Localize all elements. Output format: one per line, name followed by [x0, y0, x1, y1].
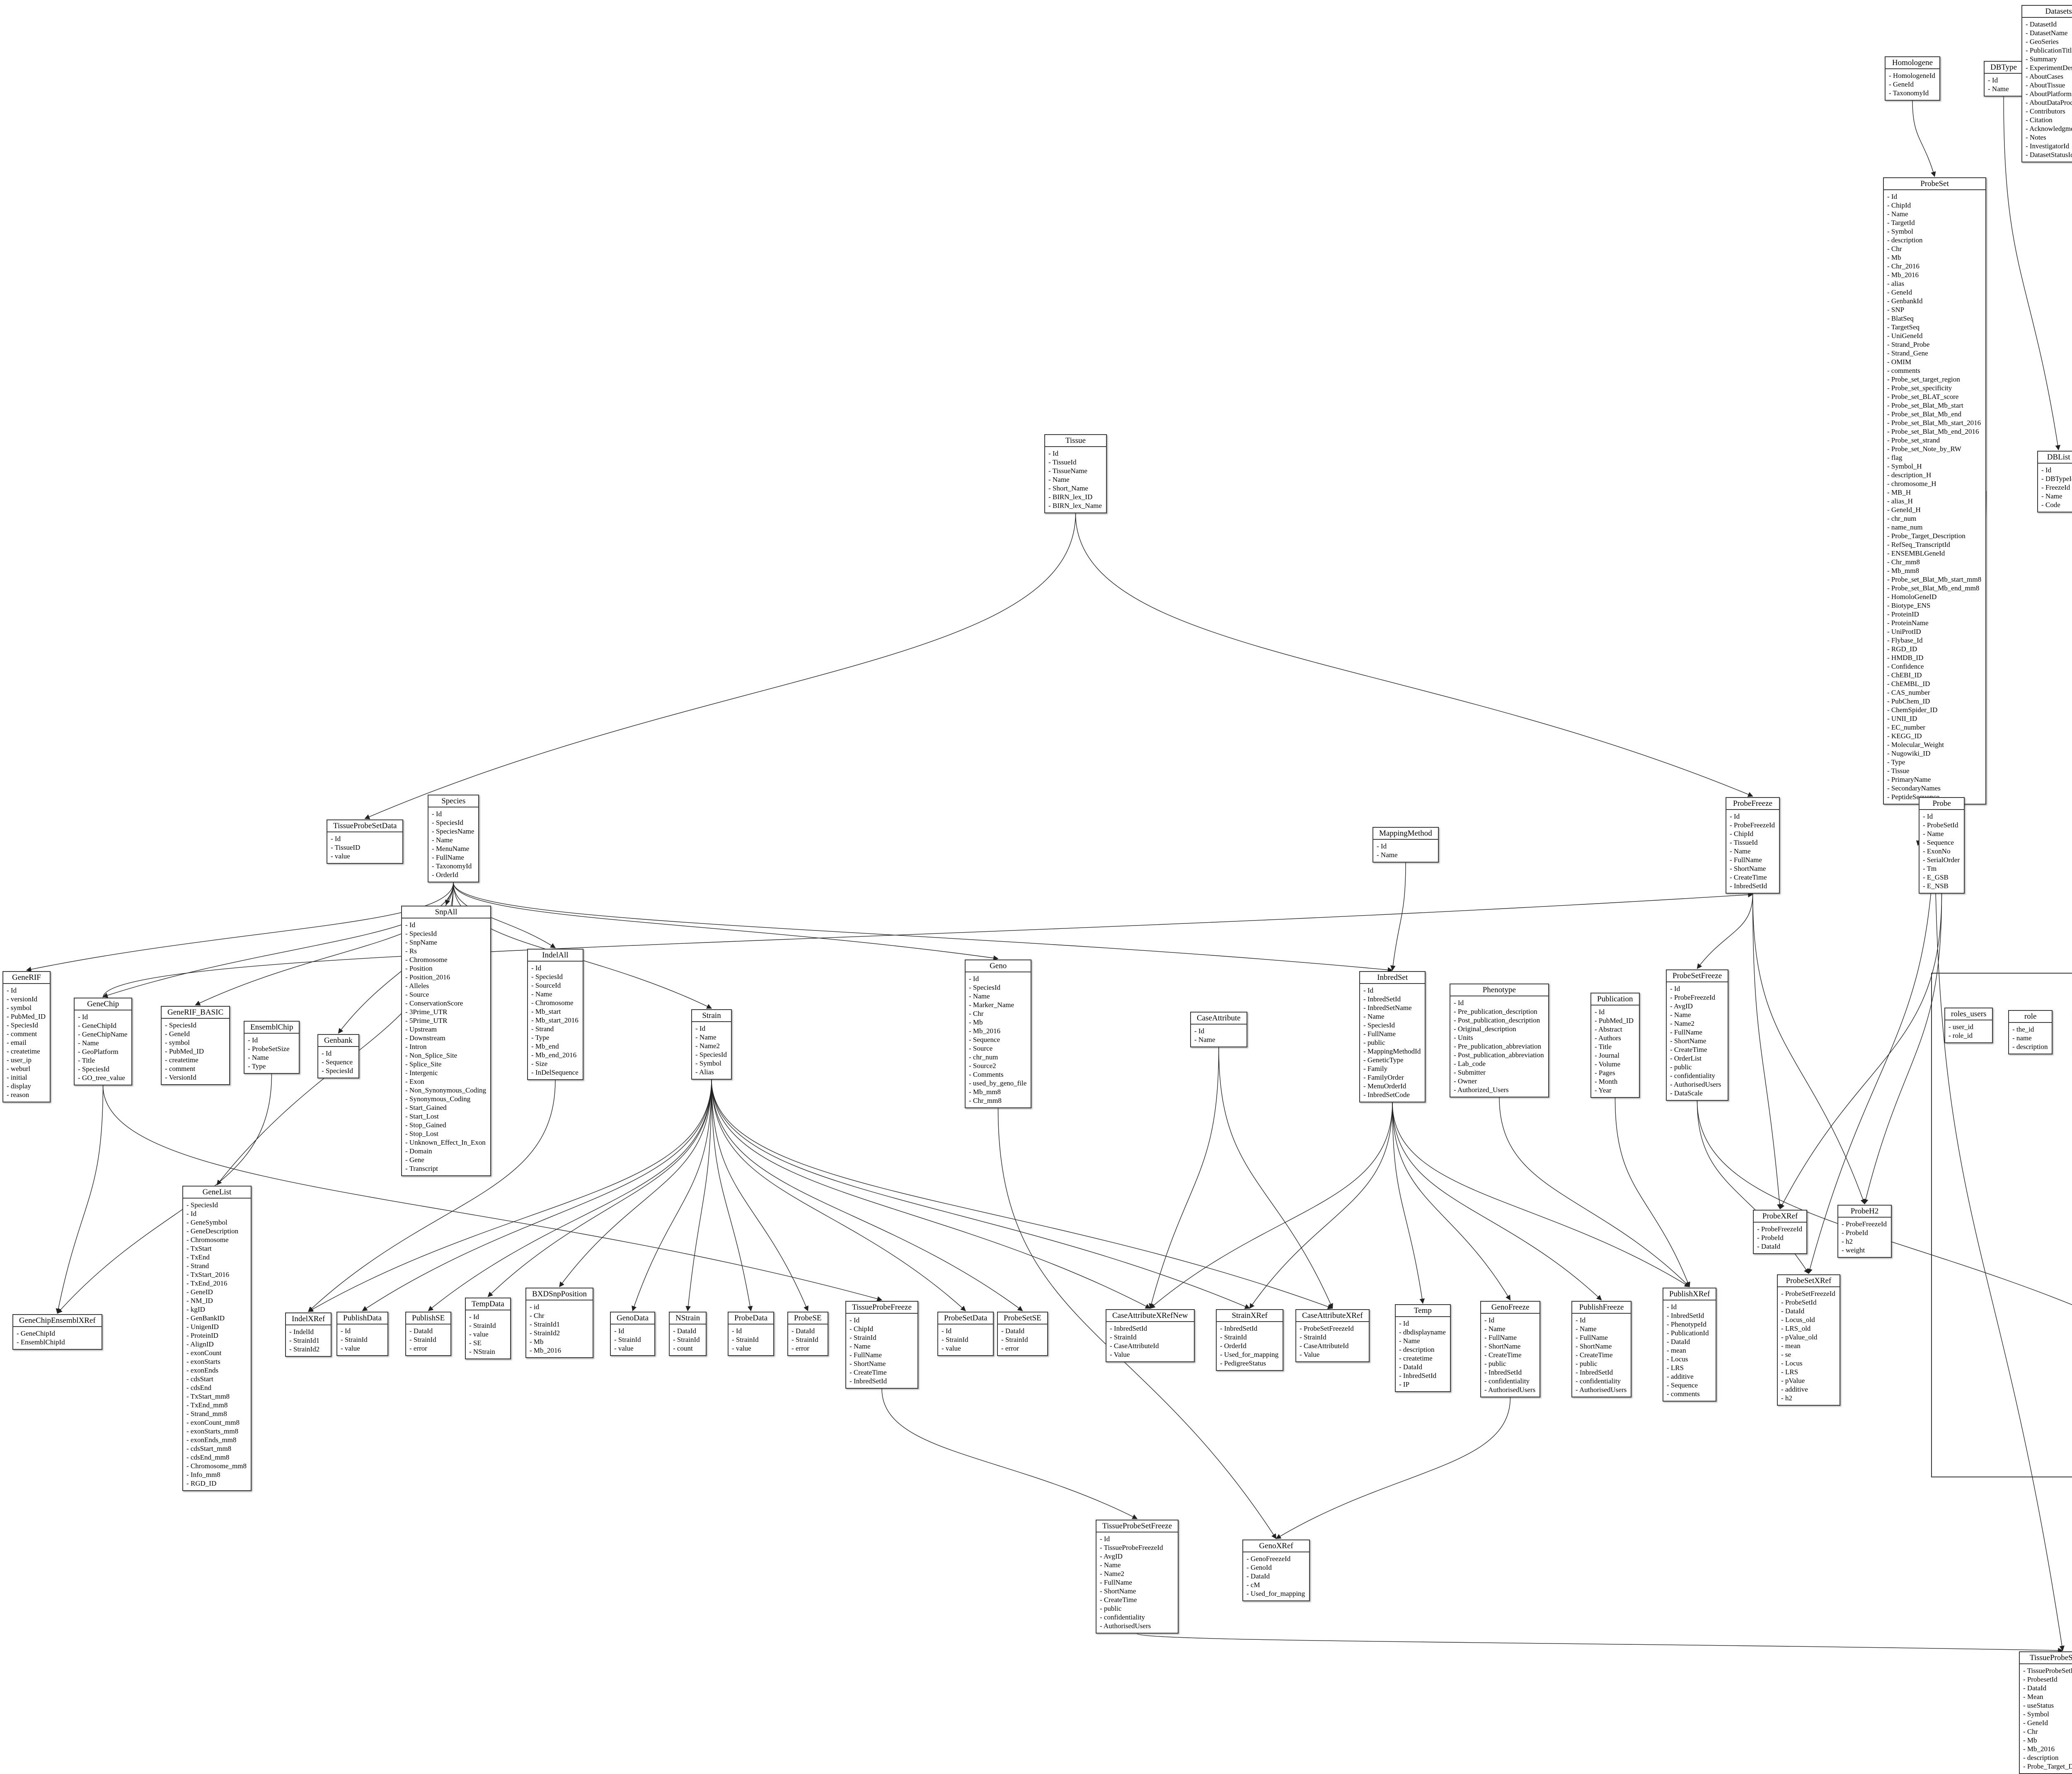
table-field: - Id: [1048, 449, 1102, 458]
table-title: CaseAttributeXRefNew: [1106, 1310, 1194, 1322]
table-field: - createtime: [165, 1056, 225, 1064]
table-field: - DataId: [673, 1327, 702, 1335]
edge-Phenotype-PublishXRef: [1499, 1097, 1690, 1287]
table-field: - cM: [1247, 1581, 1305, 1589]
table-field: - error: [409, 1344, 446, 1353]
table-field: - Name: [1048, 475, 1102, 484]
table-field: - comment: [7, 1030, 46, 1038]
table-field: - PublicationId: [1667, 1329, 1711, 1337]
table-field: - PubChem_ID: [1887, 697, 1981, 706]
table-field: - AvgID: [1670, 1002, 1723, 1010]
table-field: - InbredSetId: [1576, 1368, 1627, 1377]
table-field: - PubMed_ID: [165, 1047, 225, 1056]
table-field: - AuthorisedUsers: [1100, 1622, 1174, 1630]
table-field: - SpeciesId: [322, 1066, 354, 1075]
table-title: StrainXRef: [1217, 1310, 1283, 1322]
table-field: - Authorized_Users: [1454, 1085, 1544, 1094]
table-field: - versionId: [7, 995, 46, 1003]
table-field: - FullName: [1100, 1578, 1174, 1587]
table-field: - Type: [248, 1062, 295, 1071]
table-field: - Upstream: [405, 1025, 486, 1034]
table-field: - Locus: [1781, 1359, 1835, 1368]
table-field: - Symbol: [2023, 1710, 2072, 1718]
table-field: - SpeciesId: [695, 1050, 727, 1059]
table-field: - SpeciesId: [1363, 1021, 1421, 1030]
table-MappingMethod: MappingMethod- Id- Name: [1372, 827, 1439, 863]
table-field: - GenoFreezeId: [1247, 1554, 1305, 1563]
table-field: - cdsEnd: [186, 1383, 247, 1392]
table-field-list: - Id- versionId- symbol- PubMed_ID- Spec…: [3, 984, 50, 1102]
table-PublishFreeze: PublishFreeze- Id- Name- FullName- Short…: [1571, 1301, 1631, 1397]
table-field-list: - Id- Pre_publication_description- Post_…: [1450, 996, 1548, 1097]
table-field: - description: [2023, 1753, 2072, 1762]
table-field: - Name: [1576, 1324, 1627, 1333]
table-field: - TxEnd_2016: [186, 1279, 247, 1288]
edge-Strain-ProbeSE: [712, 1080, 808, 1311]
table-field: - Name: [695, 1033, 727, 1042]
table-field: - InbredSetId: [1363, 995, 1421, 1003]
table-title: roles_users: [1945, 1008, 1992, 1020]
table-field: - used_by_geno_file: [969, 1079, 1026, 1088]
table-field: - Title: [78, 1056, 127, 1065]
table-field: - Sequence: [1923, 838, 1960, 847]
table-field: - error: [792, 1344, 823, 1353]
table-field: - DataId: [2023, 1684, 2072, 1692]
table-field: - exonCount: [186, 1349, 247, 1357]
table-field: - StrainId: [942, 1335, 989, 1344]
table-field: - HomologeneId: [1889, 71, 1935, 80]
table-field: - Name: [1887, 210, 1981, 218]
edge-ProbeSet-ProbeSetXRef: [1809, 805, 1935, 1274]
table-field: - ProbeFreezeId: [1757, 1225, 1802, 1233]
table-title: PublishFreeze: [1572, 1302, 1631, 1314]
edge-TissueProbeSetFreeze-TissueProbeSetXRef: [1137, 1634, 2063, 1651]
table-field: - role_id: [1949, 1031, 1988, 1040]
table-field: - GenoId: [1247, 1563, 1305, 1572]
table-field: - Mb_2016: [1887, 271, 1981, 279]
table-field: - Id: [248, 1036, 295, 1044]
table-field: - KEGG_ID: [1887, 732, 1981, 740]
table-field: - PublicationTitle: [2026, 46, 2072, 55]
table-InbredSet: InbredSet- Id- InbredSetId- InbredSetNam…: [1359, 971, 1426, 1102]
table-field: - Source: [969, 1044, 1026, 1053]
table-field: - InbredSetCode: [1363, 1090, 1421, 1099]
table-field: - ProbeFreezeId: [1670, 993, 1723, 1002]
table-field: - Chr: [2023, 1727, 2072, 1736]
table-field: - StrainId: [732, 1335, 769, 1344]
table-title: ProbeData: [729, 1312, 773, 1324]
edge-Species-InbredSet: [453, 882, 1392, 970]
table-field: - Non_Splice_Site: [405, 1051, 486, 1060]
table-field: - Probe_set_Blat_Mb_end: [1887, 410, 1981, 418]
table-field: - GeneId: [1887, 288, 1981, 297]
table-field-list: - ProbeSetFreezeId- StrainId- CaseAttrib…: [1296, 1322, 1369, 1361]
table-field: - StrainId: [469, 1321, 506, 1330]
table-field: - Source: [405, 990, 486, 999]
table-field: - se: [1781, 1350, 1835, 1359]
table-field: - useStatus: [2023, 1701, 2072, 1710]
table-field: - value: [942, 1344, 989, 1353]
table-field: - Nugowiki_ID: [1887, 749, 1981, 758]
table-Genbank: Genbank- Id- Sequence- SpeciesId: [317, 1034, 359, 1078]
table-GeneList: GeneList- SpeciesId- Id- GeneSymbol- Gen…: [182, 1186, 252, 1491]
table-field: - Year: [1595, 1086, 1635, 1095]
table-field: - Name: [1363, 1012, 1421, 1021]
table-title: ProbeSetData: [938, 1312, 993, 1324]
table-field: - ChipId: [850, 1324, 913, 1333]
table-field: - initial: [7, 1073, 46, 1082]
table-field: - InbredSetId: [1667, 1311, 1711, 1320]
edge-Strain-CaseAttributeXRef: [712, 1080, 1333, 1308]
table-field-list: - HomologeneId- GeneId- TaxonomyId: [1886, 69, 1939, 100]
table-Probe: Probe- Id- ProbeSetId- Name- Sequence- E…: [1919, 797, 1965, 894]
table-field: - InbredSetId: [1110, 1324, 1190, 1333]
table-roles_users: roles_users- user_id- role_id: [1944, 1008, 1993, 1043]
table-title: SnpAll: [402, 906, 490, 918]
table-title: ProbeXRef: [1754, 1211, 1806, 1223]
table-field: - Tm: [1923, 864, 1960, 873]
table-PublishXRef: PublishXRef- Id- InbredSetId- PhenotypeI…: [1663, 1288, 1716, 1402]
table-field: - Value: [1110, 1350, 1190, 1359]
table-title: GeneRIF_BASIC: [162, 1007, 229, 1019]
table-field: - TaxonomyId: [432, 862, 474, 870]
table-title: PublishSE: [406, 1312, 450, 1324]
table-field: - Id: [78, 1013, 127, 1021]
edge-Strain-CaseAttributeXRefNew: [712, 1080, 1150, 1308]
table-Datasets: Datasets- DatasetId- DatasetName- GeoSer…: [2021, 5, 2072, 162]
table-field: - Id: [432, 810, 474, 818]
table-field-list: - Id- StrainId- value: [611, 1324, 654, 1355]
table-field: - SourceId: [531, 981, 579, 990]
table-field: - Biotype_ENS: [1887, 601, 1981, 610]
table-field: - h2: [1781, 1394, 1835, 1402]
table-field: - Mb_mm8: [969, 1088, 1026, 1096]
table-ProbeSetFreeze: ProbeSetFreeze- Id- ProbeFreezeId- AvgID…: [1666, 969, 1728, 1101]
table-field: - Chromosome: [405, 955, 486, 964]
table-title: ProbeSetXRef: [1778, 1275, 1840, 1287]
table-field: - Post_publication_abbreviation: [1454, 1051, 1544, 1059]
table-field: - GeneID: [186, 1288, 247, 1296]
table-field: - StrainId: [1300, 1333, 1365, 1341]
table-field: - StrainId: [409, 1335, 446, 1344]
table-field: - Mb_end: [531, 1042, 579, 1051]
table-field: - Id: [1595, 1008, 1635, 1016]
table-field: - Id: [695, 1024, 727, 1033]
table-field: - Code: [2041, 500, 2072, 509]
table-field-list: - Id- StrainId- value: [729, 1324, 773, 1355]
table-field: - Name: [1100, 1561, 1174, 1569]
table-field: - user_ip: [7, 1056, 46, 1064]
table-field: - FamilyOrder: [1363, 1073, 1421, 1082]
table-field-list: - Id- Sequence- SpeciesId: [318, 1047, 358, 1078]
table-field: - DataId: [1757, 1242, 1802, 1251]
table-GeneChip: GeneChip- Id- GeneChipId- GeneChipName- …: [74, 998, 132, 1085]
table-field: - FullName: [1576, 1333, 1627, 1342]
table-Homologene: Homologene- HomologeneId- GeneId- Taxono…: [1885, 56, 1940, 101]
table-field-list: - Id- Name: [1191, 1025, 1247, 1047]
table-field: - GeneticType: [1363, 1056, 1421, 1064]
table-field: - Probe_Target_Description: [1887, 532, 1981, 540]
table-field: - TxStart_mm8: [186, 1392, 247, 1401]
table-field: - Type: [531, 1033, 579, 1042]
table-field: - comments: [1667, 1390, 1711, 1398]
table-field: - Chr: [530, 1311, 588, 1320]
table-field: - Id: [1194, 1027, 1242, 1035]
table-field: - TissueName: [1048, 466, 1102, 475]
table-field: - Strand: [531, 1025, 579, 1033]
table-field: - SnpName: [405, 938, 486, 947]
table-field: - Chromosome: [531, 998, 579, 1007]
table-field: - NM_ID: [186, 1296, 247, 1305]
table-field: - Short_Name: [1048, 484, 1102, 493]
table-field: - value: [732, 1344, 769, 1353]
table-field-list: - Id- StrainId- value: [938, 1324, 993, 1355]
table-field: - BIRN_lex_Name: [1048, 501, 1102, 510]
table-field: - ProbeId: [1757, 1233, 1802, 1242]
edge-Tissue-TissueProbeSetData: [365, 513, 1076, 819]
table-title: Tissue: [1045, 435, 1106, 447]
table-field: - Acknowledgment: [2026, 124, 2072, 133]
table-field: - Id: [1730, 812, 1775, 821]
table-field: - SpeciesName: [432, 827, 474, 836]
table-Tissue: Tissue- Id- TissueId- TissueName- Name- …: [1044, 434, 1107, 513]
table-field: - GO_tree_value: [78, 1073, 127, 1082]
table-title: GeneChipEnsemblXRef: [13, 1315, 102, 1327]
table-field: - InDelSequence: [531, 1068, 579, 1077]
table-field: - Strand_Probe: [1887, 340, 1981, 349]
table-field: - Chr_mm8: [1887, 558, 1981, 566]
table-TissueProbeFreeze: TissueProbeFreeze- Id- ChipId- StrainId-…: [845, 1301, 918, 1389]
table-field: - description: [1399, 1345, 1446, 1354]
table-field: - ProbeId: [1842, 1228, 1887, 1237]
table-field: - Original_description: [1454, 1025, 1544, 1033]
table-title: Probe: [1920, 798, 1964, 810]
table-field-list: - Id- ChipId- StrainId- Name- FullName- …: [846, 1314, 917, 1388]
table-field: - Id: [1670, 984, 1723, 993]
table-field: - UniProtID: [1887, 627, 1981, 636]
edge-Tissue-ProbeFreeze: [1076, 513, 1753, 796]
table-title: CaseAttribute: [1191, 1013, 1247, 1025]
table-field: - Info_mm8: [186, 1470, 247, 1479]
table-field-list: - Id- TissueId- TissueName- Name- Short_…: [1045, 447, 1106, 512]
table-field: - GenbankId: [1887, 297, 1981, 305]
table-field: - ChipId: [1730, 829, 1775, 838]
table-field: - Mb_end_2016: [531, 1051, 579, 1059]
table-field: - Sequence: [322, 1058, 354, 1066]
table-field: - Probe_set_Blat_Mb_start_2016: [1887, 418, 1981, 427]
table-field: - BlatSeq: [1887, 314, 1981, 323]
table-field: - CAS_number: [1887, 688, 1981, 697]
table-field: - Chr: [1887, 244, 1981, 253]
table-field: - FullName: [850, 1351, 913, 1359]
table-field: - SpeciesId: [405, 929, 486, 938]
table-field: - Strand: [186, 1262, 247, 1270]
table-ProbeSetXRef: ProbeSetXRef- ProbeSetFreezeId- ProbeSet…: [1777, 1274, 1840, 1406]
table-field: - exonStarts_mm8: [186, 1427, 247, 1436]
table-field: - confidentiality: [1576, 1377, 1627, 1385]
table-field: - CaseAttributeId: [1110, 1341, 1190, 1350]
table-field: - Start_Lost: [405, 1112, 486, 1121]
table-field: - AboutPlatform: [2026, 89, 2072, 98]
table-field: - Summary: [2026, 55, 2072, 63]
table-field: - ShortName: [1484, 1342, 1535, 1351]
table-field-list: - Id- Name: [1373, 840, 1438, 862]
table-field: - Size: [531, 1059, 579, 1068]
table-field: - AboutDataProcessing: [2026, 98, 2072, 107]
table-field: - LRS: [1781, 1368, 1835, 1376]
table-field-list: - IndelId- StrainId1- StrainId2: [286, 1325, 331, 1356]
table-field: - symbol: [165, 1038, 225, 1047]
table-field: - Pre_publication_description: [1454, 1007, 1544, 1016]
table-field: - InvestigatorId: [2026, 142, 2072, 150]
table-field-list: - Id- ChipId- Name- TargetId- Symbol- de…: [1884, 190, 1985, 804]
table-field-list: - Id- Name- FullName- ShortName- CreateT…: [1572, 1314, 1631, 1397]
table-field: - Molecular_Weight: [1887, 740, 1981, 749]
table-field: - Chromosome_mm8: [186, 1462, 247, 1470]
table-field: - StrainId1: [530, 1320, 588, 1329]
table-field: - Id: [1363, 986, 1421, 995]
table-field: - Mb: [969, 1018, 1026, 1027]
table-field: - OrderId: [1220, 1341, 1278, 1350]
table-title: TissueProbeSetFreeze: [1097, 1520, 1178, 1532]
table-field-list: - Id- Name- FullName- ShortName- CreateT…: [1481, 1314, 1539, 1397]
table-field: - ProbeSetSize: [248, 1044, 295, 1053]
table-field: - Month: [1595, 1077, 1635, 1086]
table-field: - Chr_2016: [1887, 262, 1981, 271]
table-field: - Non_Synonymous_Coding: [405, 1086, 486, 1095]
table-StrainXRef: StrainXRef- InbredSetId- StrainId- Order…: [1216, 1309, 1283, 1371]
table-field: - PrimaryName: [1887, 775, 1981, 784]
table-field: - Source2: [969, 1061, 1026, 1070]
table-field: - Confidence: [1887, 662, 1981, 671]
table-IndelAll: IndelAll- Id- SpeciesId- SourceId- Name-…: [527, 949, 583, 1080]
table-field-list: - Id- PubMed_ID- Abstract- Authors- Titl…: [1591, 1005, 1639, 1097]
table-field-list: - Id- GeneChipId- GeneChipName- Name- Ge…: [75, 1010, 131, 1085]
table-title: CaseAttributeXRef: [1296, 1310, 1369, 1322]
table-field: - GeoSeries: [2026, 37, 2072, 46]
table-field: - id: [530, 1303, 588, 1311]
table-field: - OMIM: [1887, 358, 1981, 366]
table-field: - Strand_Gene: [1887, 349, 1981, 358]
table-field: - Id: [1377, 842, 1434, 851]
table-field: - h2: [1842, 1237, 1887, 1246]
table-field: - exonEnds: [186, 1366, 247, 1375]
table-field: - Family: [1363, 1064, 1421, 1073]
table-field: - TaxonomyId: [1889, 89, 1935, 97]
edge-CaseAttribute-CaseAttributeXRefNew: [1150, 1047, 1219, 1308]
table-field: - ProbeSetId: [1781, 1298, 1835, 1307]
table-field: - Name: [1399, 1337, 1446, 1345]
table-field: - EnsemblChipId: [17, 1338, 97, 1346]
table-field: - Owner: [1454, 1077, 1544, 1085]
edge-Strain-ProbeSetData: [712, 1080, 966, 1311]
table-field: - Id: [1100, 1535, 1174, 1543]
table-field: - weburl: [7, 1064, 46, 1073]
table-field: - Id: [7, 986, 46, 995]
table-field: - comment: [165, 1064, 225, 1073]
table-field: - E_GSB: [1923, 873, 1960, 882]
table-field: - Mb_mm8: [1887, 566, 1981, 575]
table-field: - Abstract: [1595, 1025, 1635, 1034]
table-field: - the_id: [2012, 1025, 2048, 1034]
table-field: - Id: [942, 1327, 989, 1335]
table-field: - StrainId: [850, 1333, 913, 1342]
table-field: - CaseAttributeId: [1300, 1341, 1365, 1350]
table-field: - Contributors: [2026, 107, 2072, 116]
table-field: - Name: [248, 1053, 295, 1062]
table-field: - PubMed_ID: [7, 1012, 46, 1021]
table-field: - GeneDescription: [186, 1227, 247, 1235]
table-GeneChipEnsemblXRef: GeneChipEnsemblXRef- GeneChipId- Ensembl…: [12, 1314, 102, 1350]
table-field: - Id: [331, 834, 398, 843]
edge-CaseAttribute-CaseAttributeXRef: [1219, 1047, 1333, 1308]
schema-diagram-canvas: Others Homologene- HomologeneId- GeneId-…: [0, 0, 2072, 1755]
table-field-list: - Id- TissueProbeFreezeId- AvgID- Name- …: [1097, 1532, 1178, 1633]
table-field: - Mb_2016: [530, 1346, 588, 1355]
table-field: - DataId: [792, 1327, 823, 1335]
table-field-list: - Id- ProbeFreezeId- AvgID- Name- Name2-…: [1667, 982, 1728, 1100]
table-field: - Intergenic: [405, 1068, 486, 1077]
table-field: - Symbol_H: [1887, 462, 1981, 471]
table-field: - Chromosome: [186, 1235, 247, 1244]
table-ProbeSetData: ProbeSetData- Id- StrainId- value: [937, 1312, 994, 1356]
table-field: - TxStart_2016: [186, 1270, 247, 1279]
table-title: GeneList: [183, 1187, 251, 1199]
table-field: - Synonymous_Coding: [405, 1095, 486, 1103]
table-field: - RGD_ID: [186, 1479, 247, 1488]
edge-InbredSet-StrainXRef: [1250, 1102, 1393, 1308]
table-field: - FullName: [1670, 1028, 1723, 1037]
table-title: Species: [428, 795, 478, 807]
table-PublishData: PublishData- Id- StrainId- value: [336, 1312, 388, 1356]
table-field-list: - Id- Name- Name2- SpeciesId- Symbol- Al…: [692, 1022, 731, 1079]
table-field: - LRS_old: [1781, 1324, 1835, 1333]
table-field: - SpeciesId: [531, 972, 579, 981]
table-field: - GenBankID: [186, 1314, 247, 1322]
table-Phenotype: Phenotype- Id- Pre_publication_descripti…: [1450, 984, 1549, 1097]
table-field: - description_H: [1887, 471, 1981, 479]
table-field: - Locus_old: [1781, 1315, 1835, 1324]
table-field: - Name: [1923, 829, 1960, 838]
table-field-list: - DatasetId- DatasetName- GeoSeries- Pub…: [2022, 18, 2072, 162]
table-BXDSnpPosition: BXDSnpPosition- id- Chr- StrainId1- Stra…: [525, 1288, 593, 1358]
table-field: - Name: [1670, 1010, 1723, 1019]
table-field: - InbredSetId: [1484, 1368, 1535, 1377]
table-field: - Position_2016: [405, 973, 486, 981]
edge-Strain-StrainXRef: [712, 1080, 1250, 1308]
table-field: - Submitter: [1454, 1068, 1544, 1077]
table-field: - Id: [1667, 1303, 1711, 1311]
table-field: - Pre_publication_abbreviation: [1454, 1042, 1544, 1051]
table-title: DBType: [1985, 62, 2023, 74]
table-field-list: - DataId- StrainId- error: [406, 1324, 450, 1355]
table-field: - public: [1363, 1038, 1421, 1047]
table-field: - Used_for_mapping: [1220, 1350, 1278, 1359]
table-field: - SpeciesId: [432, 818, 474, 827]
table-field: - display: [7, 1082, 46, 1090]
table-field: - Mean: [2023, 1692, 2072, 1701]
table-field-list: - DataId- StrainId- error: [788, 1324, 828, 1355]
table-field: - StrainId: [1110, 1333, 1190, 1341]
table-field: - symbol: [7, 1003, 46, 1012]
table-field: - Id: [1988, 76, 2019, 85]
table-field: - cdsStart: [186, 1375, 247, 1383]
edge-ProbeFreeze-ProbeXRef: [1753, 894, 1780, 1209]
table-field: - AuthorisedUsers: [1670, 1080, 1723, 1089]
table-field: - SerialOrder: [1923, 856, 1960, 864]
table-field: - GeoPlatform: [78, 1047, 127, 1056]
table-field: - TargetSeq: [1887, 323, 1981, 331]
